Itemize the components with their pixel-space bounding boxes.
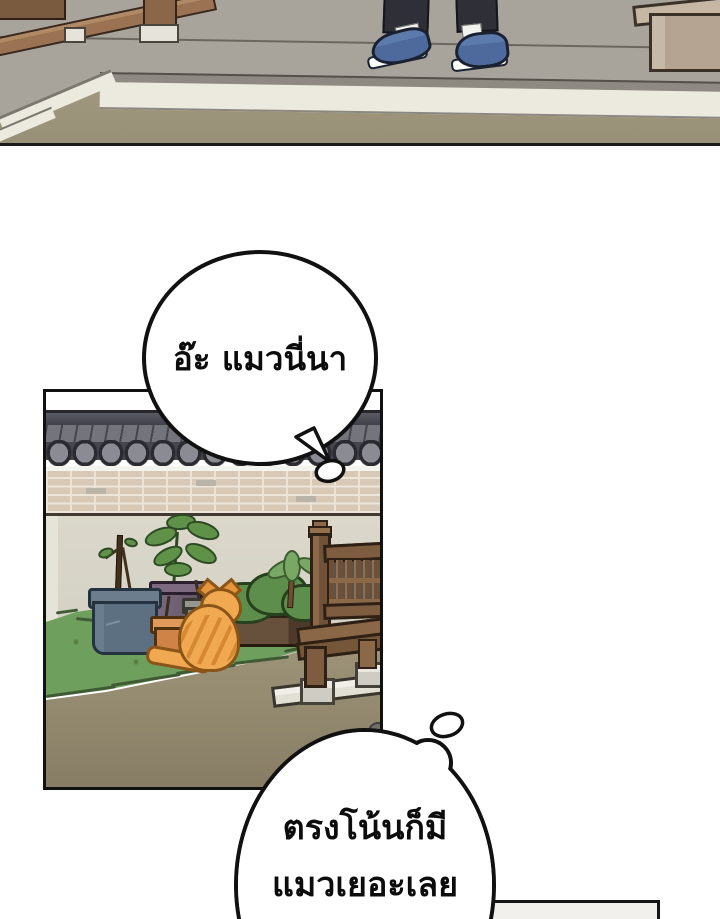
thought-bubble-2-line2: แมวเยอะเลย [235, 857, 495, 914]
plant-leaf [164, 562, 192, 577]
panel-porch [0, 0, 720, 146]
thought-bubble-2-line1: ตรงโน้นก็มี [235, 800, 495, 857]
cat-stripes [181, 615, 237, 665]
thought-bubble-2-text: ตรงโน้นก็มี แมวเยอะเลย [235, 800, 495, 914]
gray-brick [86, 488, 106, 494]
panel-garden [43, 389, 383, 790]
storage-box [649, 13, 720, 72]
gray-brick [196, 480, 216, 486]
wooden-bench-panel [0, 0, 66, 20]
deck-leg-left [304, 646, 327, 688]
thought-bubble-1-text: อ๊ะ แมวนี่นา [140, 334, 380, 384]
corner-rock [368, 722, 383, 746]
gray-brick [296, 496, 316, 502]
deck-railing-bottom [323, 602, 383, 620]
bench-foot-stone-small [64, 27, 86, 43]
bench-foot-stone [139, 24, 179, 43]
comic-page: อ๊ะ แมวนี่นา ตรงโน้นก็มี แมวเยอะเลย [0, 0, 720, 919]
deck-leg-right [358, 639, 377, 669]
floor-seam-line [0, 36, 720, 49]
roof-tile-ends [46, 440, 380, 468]
